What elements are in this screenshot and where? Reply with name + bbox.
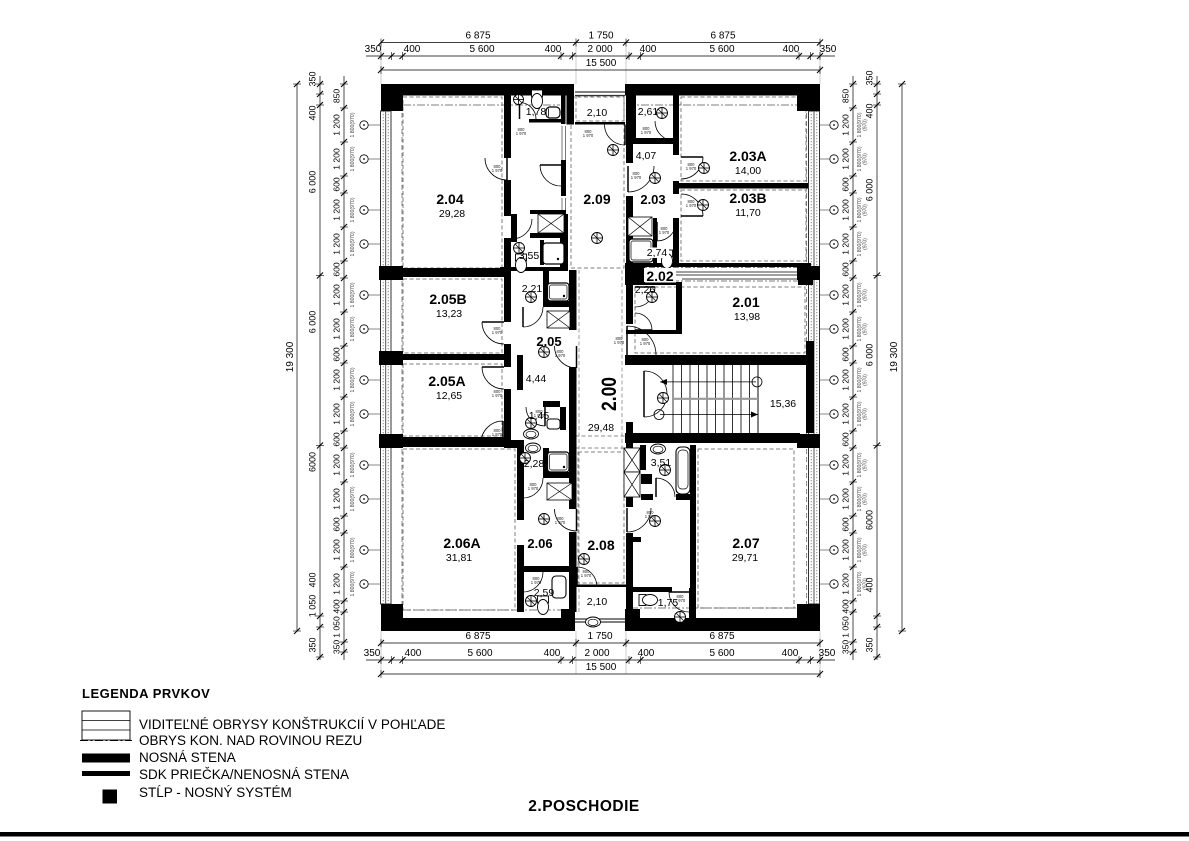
svg-text:6 000: 6 000 <box>308 171 318 194</box>
svg-text:6 000: 6 000 <box>865 344 875 367</box>
svg-text:15 500: 15 500 <box>586 662 617 673</box>
svg-text:600: 600 <box>332 347 342 362</box>
svg-text:1 200: 1 200 <box>841 233 851 255</box>
svg-text:(970): (970) <box>863 493 869 505</box>
svg-text:19 300: 19 300 <box>889 341 900 372</box>
svg-text:5 600: 5 600 <box>467 648 492 659</box>
svg-text:1 800(970): 1 800(970) <box>350 367 356 392</box>
svg-text:850: 850 <box>332 89 342 104</box>
svg-text:600: 600 <box>841 177 851 192</box>
svg-text:6 000: 6 000 <box>308 311 318 334</box>
svg-text:12,65: 12,65 <box>436 390 462 402</box>
svg-text:1 200: 1 200 <box>332 573 342 595</box>
svg-text:1 970: 1 970 <box>516 131 527 136</box>
svg-text:2.03B: 2.03B <box>729 190 766 206</box>
svg-text:1 970: 1 970 <box>531 580 542 585</box>
svg-text:1 050: 1 050 <box>841 616 851 638</box>
svg-text:2,61: 2,61 <box>638 106 659 118</box>
svg-text:600: 600 <box>841 347 851 362</box>
svg-text:1 200: 1 200 <box>332 454 342 476</box>
svg-text:OBRYS KON. NAD ROVINOU REZU: OBRYS KON. NAD ROVINOU REZU <box>139 733 362 748</box>
svg-text:400: 400 <box>783 44 800 55</box>
svg-text:400: 400 <box>545 44 562 55</box>
svg-text:1 970: 1 970 <box>583 133 594 138</box>
svg-text:400: 400 <box>640 44 657 55</box>
svg-text:2.05A: 2.05A <box>428 373 465 389</box>
svg-text:(970): (970) <box>863 459 869 471</box>
svg-text:350: 350 <box>820 44 837 55</box>
svg-text:400: 400 <box>865 577 875 592</box>
svg-text:6 000: 6 000 <box>865 179 875 202</box>
svg-text:1 750: 1 750 <box>587 631 612 642</box>
svg-text:400: 400 <box>308 105 318 120</box>
svg-text:(970): (970) <box>863 204 869 216</box>
svg-text:31,81: 31,81 <box>446 552 472 564</box>
svg-text:2.04: 2.04 <box>436 191 463 207</box>
svg-text:1 970: 1 970 <box>645 514 656 519</box>
svg-text:1 800(970): 1 800(970) <box>350 452 356 477</box>
svg-text:6 875: 6 875 <box>709 631 734 642</box>
svg-text:1 970: 1 970 <box>640 341 651 346</box>
svg-text:2 000: 2 000 <box>584 648 609 659</box>
svg-text:1,78: 1,78 <box>526 106 547 118</box>
svg-text:1 800(970): 1 800(970) <box>350 197 356 222</box>
svg-text:1 970: 1 970 <box>641 130 652 135</box>
svg-text:2.03A: 2.03A <box>729 148 766 164</box>
svg-text:400: 400 <box>841 599 851 614</box>
svg-text:1 800(970): 1 800(970) <box>350 112 356 137</box>
svg-text:350: 350 <box>364 648 381 659</box>
svg-text:1 970: 1 970 <box>686 203 697 208</box>
svg-text:(970): (970) <box>863 238 869 250</box>
svg-text:1 970: 1 970 <box>614 340 625 345</box>
svg-text:1,45: 1,45 <box>529 410 550 422</box>
svg-text:29,28: 29,28 <box>439 208 465 220</box>
svg-text:2,26: 2,26 <box>635 284 656 296</box>
svg-text:400: 400 <box>405 648 422 659</box>
svg-text:1 970: 1 970 <box>555 520 566 525</box>
svg-text:1 970: 1 970 <box>581 573 592 578</box>
svg-text:400: 400 <box>332 599 342 614</box>
svg-text:6000: 6000 <box>865 510 875 530</box>
svg-text:15 500: 15 500 <box>586 58 617 69</box>
svg-text:2.09: 2.09 <box>583 191 610 207</box>
svg-text:2,28: 2,28 <box>524 458 545 470</box>
svg-text:15,36: 15,36 <box>770 398 796 410</box>
svg-text:6 875: 6 875 <box>465 631 490 642</box>
svg-text:13,98: 13,98 <box>734 311 760 323</box>
svg-text:1 800(970): 1 800(970) <box>350 571 356 596</box>
svg-text:400: 400 <box>404 44 421 55</box>
svg-text:1 970: 1 970 <box>492 330 503 335</box>
svg-text:1 200: 1 200 <box>841 199 851 221</box>
svg-text:(970): (970) <box>863 119 869 131</box>
svg-text:4,07: 4,07 <box>636 150 657 162</box>
svg-text:VIDITEĽNÉ OBRYSY KONŠTRUKCIÍ V: VIDITEĽNÉ OBRYSY KONŠTRUKCIÍ V POHĽADE <box>139 717 445 732</box>
svg-text:STĹP - NOSNÝ SYSTÉM: STĹP - NOSNÝ SYSTÉM <box>139 785 292 800</box>
svg-text:11,70: 11,70 <box>735 207 761 219</box>
svg-text:1 200: 1 200 <box>332 148 342 170</box>
svg-text:350: 350 <box>865 70 875 85</box>
svg-text:2,21: 2,21 <box>522 283 543 295</box>
svg-text:2.08: 2.08 <box>587 537 614 553</box>
svg-text:5 600: 5 600 <box>709 648 734 659</box>
svg-text:1 200: 1 200 <box>332 403 342 425</box>
svg-text:400: 400 <box>782 648 799 659</box>
svg-text:1 970: 1 970 <box>492 168 503 173</box>
svg-text:1 200: 1 200 <box>332 114 342 136</box>
svg-text:350: 350 <box>308 637 318 652</box>
svg-text:(970): (970) <box>863 323 869 335</box>
svg-text:LEGENDA PRVKOV: LEGENDA PRVKOV <box>82 686 210 701</box>
svg-text:350: 350 <box>308 71 318 86</box>
svg-text:1 800(970): 1 800(970) <box>350 537 356 562</box>
svg-text:1 800(970): 1 800(970) <box>350 282 356 307</box>
svg-text:14,00: 14,00 <box>735 165 761 177</box>
svg-text:1 050: 1 050 <box>308 595 318 618</box>
svg-text:1 200: 1 200 <box>841 318 851 340</box>
svg-text:1 200: 1 200 <box>332 488 342 510</box>
svg-text:1 200: 1 200 <box>841 488 851 510</box>
svg-text:600: 600 <box>841 517 851 532</box>
svg-text:3,51: 3,51 <box>651 457 672 469</box>
svg-text:6 875: 6 875 <box>710 31 735 42</box>
svg-text:1 800(970): 1 800(970) <box>350 486 356 511</box>
svg-text:1 200: 1 200 <box>332 539 342 561</box>
svg-text:5 600: 5 600 <box>469 44 494 55</box>
svg-text:2.07: 2.07 <box>732 535 759 551</box>
svg-text:1 970: 1 970 <box>686 166 697 171</box>
svg-text:1 750: 1 750 <box>588 31 613 42</box>
svg-text:600: 600 <box>841 432 851 447</box>
svg-text:1,75: 1,75 <box>658 597 679 609</box>
svg-text:29,71: 29,71 <box>732 552 758 564</box>
svg-text:600: 600 <box>841 262 851 277</box>
svg-text:1 050: 1 050 <box>332 616 342 638</box>
svg-text:2.POSCHODIE: 2.POSCHODIE <box>528 798 639 815</box>
svg-text:1 200: 1 200 <box>841 454 851 476</box>
svg-text:400: 400 <box>308 572 318 587</box>
svg-text:2 000: 2 000 <box>587 44 612 55</box>
svg-text:1 200: 1 200 <box>841 539 851 561</box>
svg-text:1 970: 1 970 <box>659 230 670 235</box>
svg-text:1 970: 1 970 <box>492 432 503 437</box>
svg-text:350: 350 <box>365 44 382 55</box>
svg-text:1 200: 1 200 <box>332 318 342 340</box>
svg-text:2.03: 2.03 <box>640 192 665 207</box>
svg-text:2,10: 2,10 <box>587 107 608 119</box>
svg-text:2,59: 2,59 <box>534 587 555 599</box>
svg-text:1 200: 1 200 <box>841 114 851 136</box>
svg-text:29,48: 29,48 <box>588 422 614 434</box>
svg-text:1 970: 1 970 <box>528 486 539 491</box>
svg-text:19 300: 19 300 <box>285 341 296 372</box>
svg-text:1 970: 1 970 <box>492 393 503 398</box>
svg-text:350: 350 <box>819 648 836 659</box>
svg-text:1 970: 1 970 <box>555 353 566 358</box>
svg-text:1 200: 1 200 <box>332 199 342 221</box>
svg-text:1 200: 1 200 <box>841 284 851 306</box>
svg-text:(970): (970) <box>863 374 869 386</box>
svg-text:1 200: 1 200 <box>332 284 342 306</box>
svg-text:2.00: 2.00 <box>598 377 621 411</box>
svg-text:5 600: 5 600 <box>709 44 734 55</box>
svg-text:400: 400 <box>865 103 875 118</box>
svg-text:350: 350 <box>865 637 875 652</box>
svg-text:2.01: 2.01 <box>732 294 759 310</box>
svg-text:2.02: 2.02 <box>646 268 673 284</box>
svg-text:(970): (970) <box>863 153 869 165</box>
svg-text:1 200: 1 200 <box>841 148 851 170</box>
svg-text:NOSNÁ STENA: NOSNÁ STENA <box>139 750 236 765</box>
svg-text:(970): (970) <box>863 289 869 301</box>
svg-text:600: 600 <box>332 262 342 277</box>
svg-text:1 800(970): 1 800(970) <box>350 146 356 171</box>
svg-text:1 800(970): 1 800(970) <box>350 401 356 426</box>
svg-text:2.06A: 2.06A <box>443 535 480 551</box>
svg-text:600: 600 <box>332 432 342 447</box>
svg-text:4,44: 4,44 <box>526 373 547 385</box>
svg-text:400: 400 <box>638 648 655 659</box>
svg-text:1 800(970): 1 800(970) <box>350 316 356 341</box>
svg-text:2.06: 2.06 <box>527 536 552 551</box>
svg-text:600: 600 <box>332 517 342 532</box>
svg-text:1 200: 1 200 <box>332 233 342 255</box>
svg-text:(970): (970) <box>863 544 869 556</box>
svg-text:2,10: 2,10 <box>587 596 608 608</box>
svg-text:3,55: 3,55 <box>519 250 540 262</box>
svg-text:2.05B: 2.05B <box>429 291 466 307</box>
svg-text:2,74: 2,74 <box>647 247 668 259</box>
svg-text:1 800(970): 1 800(970) <box>350 231 356 256</box>
svg-text:1 200: 1 200 <box>841 403 851 425</box>
svg-text:1 200: 1 200 <box>841 369 851 391</box>
svg-text:1 200: 1 200 <box>841 573 851 595</box>
svg-text:850: 850 <box>841 89 851 104</box>
svg-text:(970): (970) <box>863 408 869 420</box>
svg-text:1 970: 1 970 <box>631 175 642 180</box>
svg-text:13,23: 13,23 <box>436 308 462 320</box>
svg-text:SDK PRIEČKA/NENOSNÁ STENA: SDK PRIEČKA/NENOSNÁ STENA <box>139 767 349 782</box>
svg-text:2.05: 2.05 <box>536 334 561 349</box>
svg-text:600: 600 <box>332 177 342 192</box>
svg-text:6000: 6000 <box>308 452 318 472</box>
svg-text:1 200: 1 200 <box>332 369 342 391</box>
svg-text:400: 400 <box>544 648 561 659</box>
svg-text:6 875: 6 875 <box>465 31 490 42</box>
